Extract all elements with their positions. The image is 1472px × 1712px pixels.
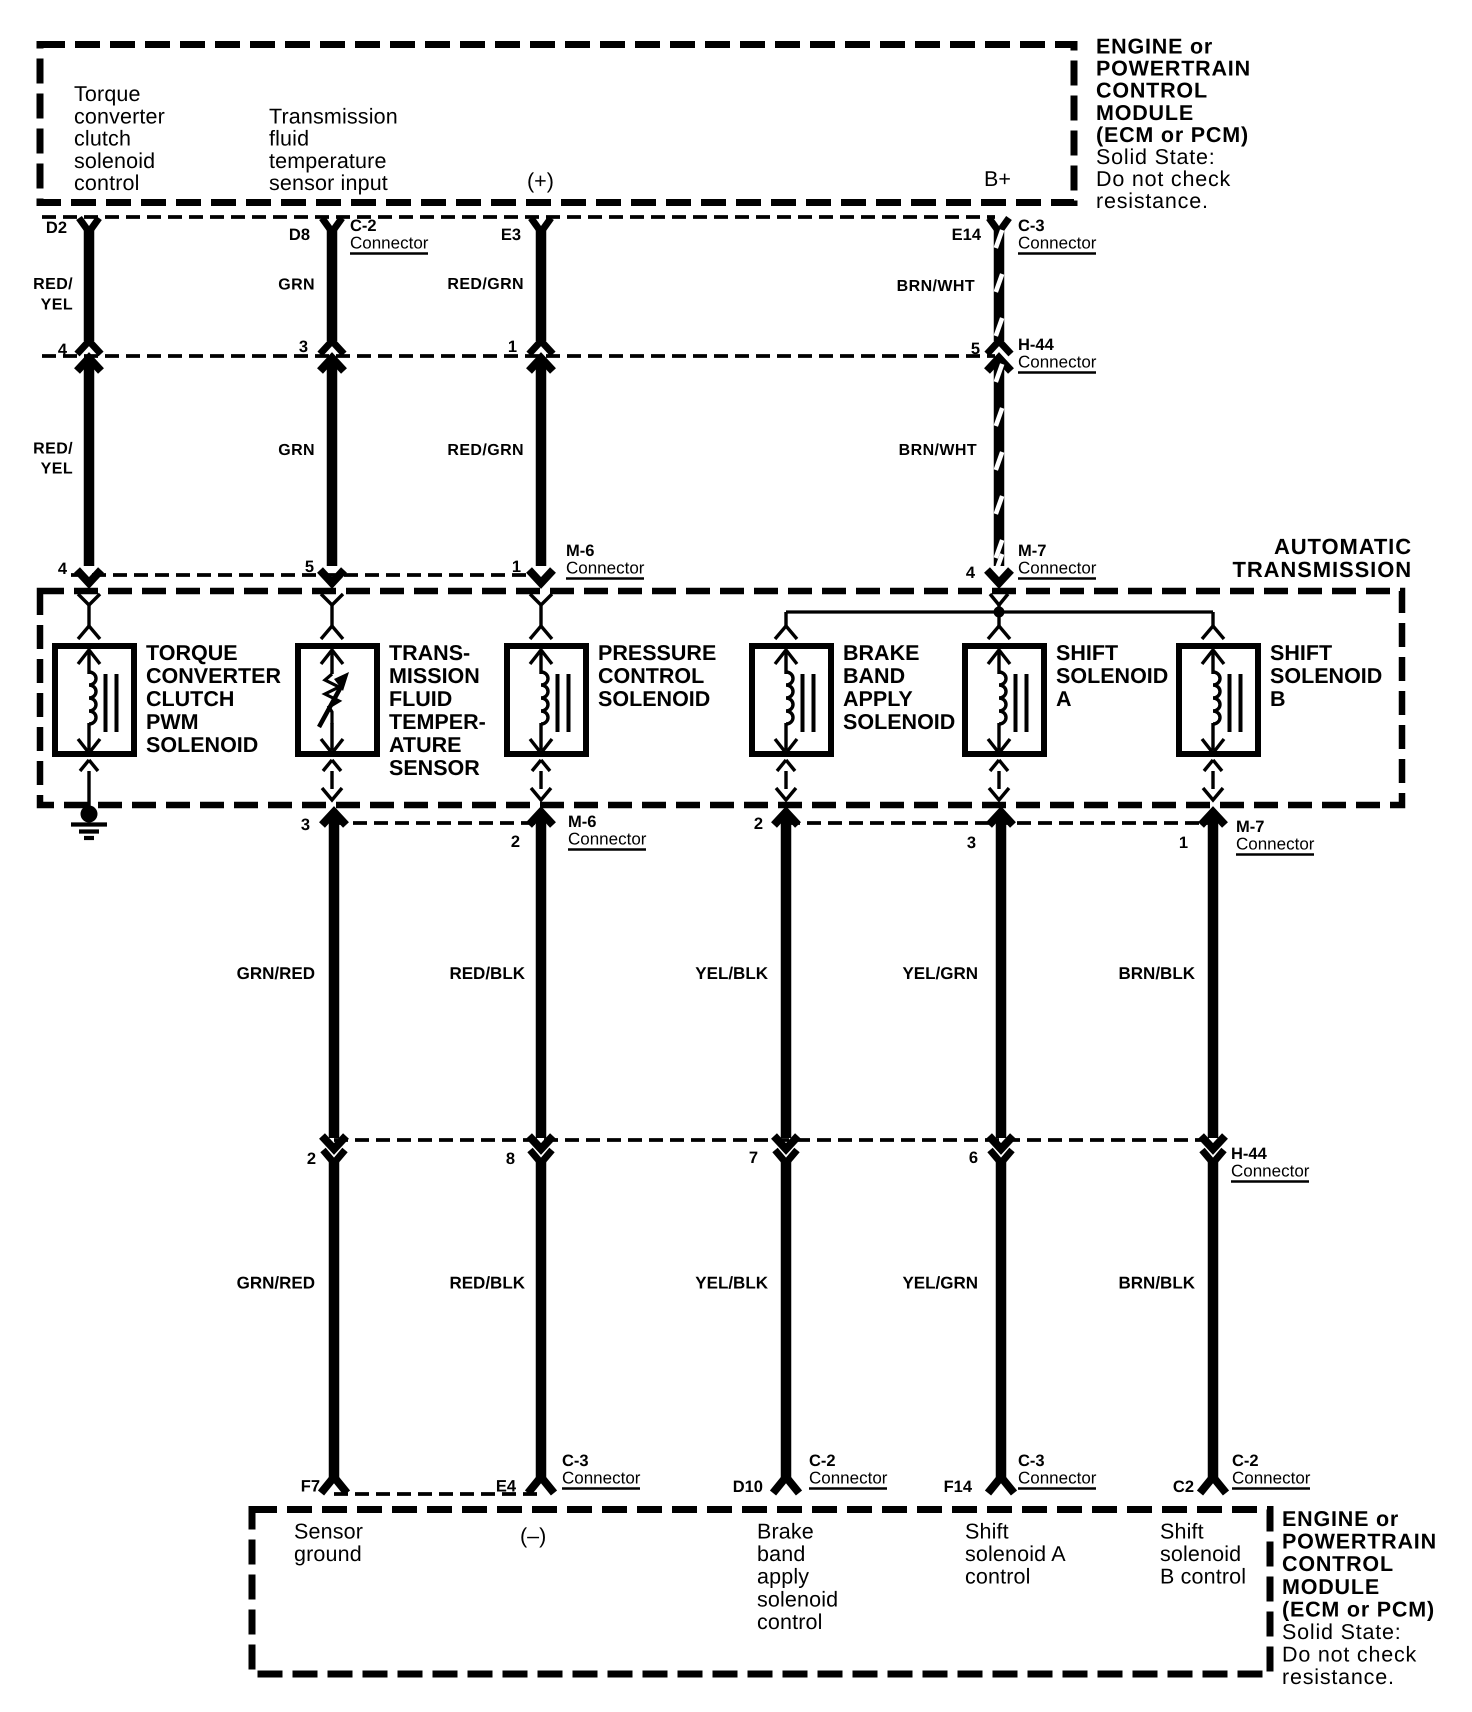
svg-text:(ECM or PCM): (ECM or PCM)	[1096, 123, 1249, 147]
svg-text:CONTROL: CONTROL	[598, 664, 704, 688]
svg-text:F14: F14	[944, 1478, 973, 1496]
svg-text:control: control	[74, 171, 140, 195]
svg-text:FLUID: FLUID	[389, 687, 452, 711]
svg-text:SHIFT: SHIFT	[1056, 641, 1118, 665]
svg-text:Connector: Connector	[1231, 1162, 1310, 1181]
svg-text:C-3: C-3	[562, 1452, 589, 1470]
svg-text:SOLENOID: SOLENOID	[598, 687, 710, 711]
svg-text:C-2: C-2	[350, 217, 377, 235]
svg-text:C-3: C-3	[1018, 1452, 1045, 1470]
svg-text:Brake: Brake	[757, 1520, 814, 1544]
svg-text:CONTROL: CONTROL	[1282, 1552, 1394, 1576]
svg-text:control: control	[757, 1610, 823, 1634]
svg-text:C-2: C-2	[1232, 1452, 1259, 1470]
svg-text:Connector: Connector	[1018, 559, 1097, 578]
svg-text:YEL/GRN: YEL/GRN	[902, 964, 978, 983]
svg-text:(+): (+)	[527, 169, 554, 193]
svg-text:(–): (–)	[520, 1524, 546, 1548]
svg-text:RED/: RED/	[33, 441, 73, 458]
svg-text:converter: converter	[74, 104, 165, 128]
svg-text:2: 2	[511, 833, 520, 851]
svg-text:6: 6	[969, 1149, 978, 1167]
svg-text:CONTROL: CONTROL	[1096, 79, 1208, 103]
svg-text:BRN/BLK: BRN/BLK	[1119, 1274, 1196, 1293]
svg-text:BAND: BAND	[843, 664, 905, 688]
svg-text:GRN/RED: GRN/RED	[237, 964, 315, 983]
svg-text:B+: B+	[984, 167, 1011, 191]
svg-text:Connector: Connector	[568, 830, 647, 849]
svg-text:C2: C2	[1173, 1478, 1194, 1496]
svg-text:SOLENOID: SOLENOID	[1056, 664, 1168, 688]
svg-text:A: A	[1056, 687, 1072, 711]
svg-text:control: control	[965, 1565, 1031, 1589]
svg-text:resistance.: resistance.	[1096, 189, 1209, 213]
svg-text:YEL/BLK: YEL/BLK	[695, 1274, 768, 1293]
svg-text:POWERTRAIN: POWERTRAIN	[1282, 1530, 1437, 1554]
svg-text:Connector: Connector	[1018, 234, 1097, 253]
svg-text:M-7: M-7	[1236, 818, 1264, 836]
svg-text:solenoid A: solenoid A	[965, 1542, 1066, 1566]
svg-text:temperature: temperature	[269, 149, 387, 173]
svg-text:B control: B control	[1160, 1565, 1246, 1589]
svg-text:Solid State:: Solid State:	[1096, 145, 1216, 169]
svg-text:TRANSMISSION: TRANSMISSION	[1233, 557, 1412, 582]
svg-text:RED/BLK: RED/BLK	[449, 964, 525, 983]
svg-text:Connector: Connector	[562, 1469, 641, 1488]
svg-text:1: 1	[512, 558, 521, 576]
svg-text:D8: D8	[289, 226, 310, 244]
svg-text:GRN: GRN	[278, 442, 315, 459]
svg-text:1: 1	[508, 338, 517, 356]
svg-text:YEL/BLK: YEL/BLK	[695, 964, 768, 983]
svg-text:Transmission: Transmission	[269, 104, 398, 128]
svg-text:1: 1	[1179, 834, 1188, 852]
svg-text:D2: D2	[46, 219, 67, 237]
svg-text:2: 2	[307, 1150, 316, 1168]
svg-text:SOLENOID: SOLENOID	[146, 733, 258, 757]
svg-text:2: 2	[754, 815, 763, 833]
svg-text:MODULE: MODULE	[1282, 1575, 1380, 1599]
svg-text:(ECM or PCM): (ECM or PCM)	[1282, 1597, 1435, 1621]
svg-text:solenoid: solenoid	[74, 149, 155, 173]
svg-text:PRESSURE: PRESSURE	[598, 641, 716, 665]
svg-text:CLUTCH: CLUTCH	[146, 687, 234, 711]
svg-text:CONVERTER: CONVERTER	[146, 664, 281, 688]
svg-text:H-44: H-44	[1231, 1145, 1268, 1163]
svg-text:SOLENOID: SOLENOID	[843, 710, 955, 734]
svg-text:M-6: M-6	[568, 813, 596, 831]
svg-text:PWM: PWM	[146, 710, 199, 734]
svg-text:Do not check: Do not check	[1282, 1643, 1417, 1667]
svg-text:Connector: Connector	[350, 234, 429, 253]
svg-text:D10: D10	[733, 1478, 763, 1496]
svg-text:ATURE: ATURE	[389, 733, 461, 757]
svg-text:YEL: YEL	[41, 461, 73, 478]
svg-text:AUTOMATIC: AUTOMATIC	[1274, 534, 1412, 559]
svg-text:M-7: M-7	[1018, 542, 1046, 560]
svg-text:Connector: Connector	[1236, 835, 1315, 854]
svg-text:8: 8	[506, 1150, 515, 1168]
svg-text:5: 5	[305, 558, 314, 576]
svg-text:SOLENOID: SOLENOID	[1270, 664, 1382, 688]
svg-text:M-6: M-6	[566, 542, 594, 560]
svg-text:RED/GRN: RED/GRN	[447, 442, 524, 459]
svg-text:GRN: GRN	[278, 277, 315, 294]
svg-text:RED/GRN: RED/GRN	[447, 276, 524, 293]
svg-text:BRAKE: BRAKE	[843, 641, 919, 665]
svg-text:Connector: Connector	[1232, 1469, 1311, 1488]
svg-text:TEMPER-: TEMPER-	[389, 710, 486, 734]
svg-text:RED/: RED/	[33, 276, 73, 293]
svg-text:apply: apply	[757, 1565, 809, 1589]
svg-text:Do not check: Do not check	[1096, 167, 1231, 191]
svg-text:Connector: Connector	[1018, 353, 1097, 372]
svg-text:Torque: Torque	[74, 82, 141, 106]
svg-text:BRN/BLK: BRN/BLK	[1119, 964, 1196, 983]
svg-text:Shift: Shift	[1160, 1520, 1204, 1544]
svg-text:YEL/GRN: YEL/GRN	[902, 1274, 978, 1293]
svg-text:B: B	[1270, 687, 1286, 711]
svg-text:POWERTRAIN: POWERTRAIN	[1096, 57, 1251, 81]
svg-text:band: band	[757, 1542, 805, 1566]
svg-text:ENGINE or: ENGINE or	[1282, 1507, 1399, 1531]
svg-text:TRANS-: TRANS-	[389, 641, 470, 665]
svg-text:MODULE: MODULE	[1096, 101, 1194, 125]
svg-text:YEL: YEL	[41, 297, 73, 314]
svg-text:C-3: C-3	[1018, 217, 1045, 235]
svg-text:solenoid: solenoid	[757, 1587, 838, 1611]
svg-text:MISSION: MISSION	[389, 664, 480, 688]
svg-text:Connector: Connector	[566, 559, 645, 578]
svg-text:E3: E3	[501, 226, 521, 244]
svg-text:GRN/RED: GRN/RED	[237, 1274, 315, 1293]
svg-text:TORQUE: TORQUE	[146, 641, 238, 665]
svg-text:SHIFT: SHIFT	[1270, 641, 1332, 665]
svg-text:Solid State:: Solid State:	[1282, 1620, 1402, 1644]
svg-text:3: 3	[967, 834, 976, 852]
svg-text:resistance.: resistance.	[1282, 1665, 1395, 1689]
svg-text:H-44: H-44	[1018, 336, 1055, 354]
svg-text:sensor input: sensor input	[269, 171, 388, 195]
svg-text:BRN/WHT: BRN/WHT	[899, 442, 977, 459]
svg-text:RED/BLK: RED/BLK	[449, 1274, 525, 1293]
svg-text:7: 7	[749, 1149, 758, 1167]
svg-text:BRN/WHT: BRN/WHT	[897, 278, 975, 295]
svg-text:Sensor: Sensor	[294, 1520, 363, 1544]
svg-text:Connector: Connector	[1018, 1469, 1097, 1488]
svg-text:SENSOR: SENSOR	[389, 756, 480, 780]
svg-text:Connector: Connector	[809, 1469, 888, 1488]
svg-text:Shift: Shift	[965, 1520, 1009, 1544]
svg-text:C-2: C-2	[809, 1452, 836, 1470]
svg-text:ground: ground	[294, 1542, 362, 1566]
svg-text:F7: F7	[301, 1478, 320, 1496]
svg-text:4: 4	[58, 341, 68, 359]
svg-text:clutch: clutch	[74, 127, 131, 151]
svg-text:solenoid: solenoid	[1160, 1542, 1241, 1566]
svg-text:fluid: fluid	[269, 127, 309, 151]
svg-text:3: 3	[299, 338, 308, 356]
svg-text:5: 5	[971, 340, 980, 358]
svg-text:4: 4	[966, 564, 976, 582]
svg-text:APPLY: APPLY	[843, 687, 913, 711]
svg-text:4: 4	[58, 560, 68, 578]
svg-text:3: 3	[301, 816, 310, 834]
svg-text:E4: E4	[496, 1478, 517, 1496]
svg-text:ENGINE or: ENGINE or	[1096, 35, 1213, 59]
svg-text:E14: E14	[952, 226, 982, 244]
